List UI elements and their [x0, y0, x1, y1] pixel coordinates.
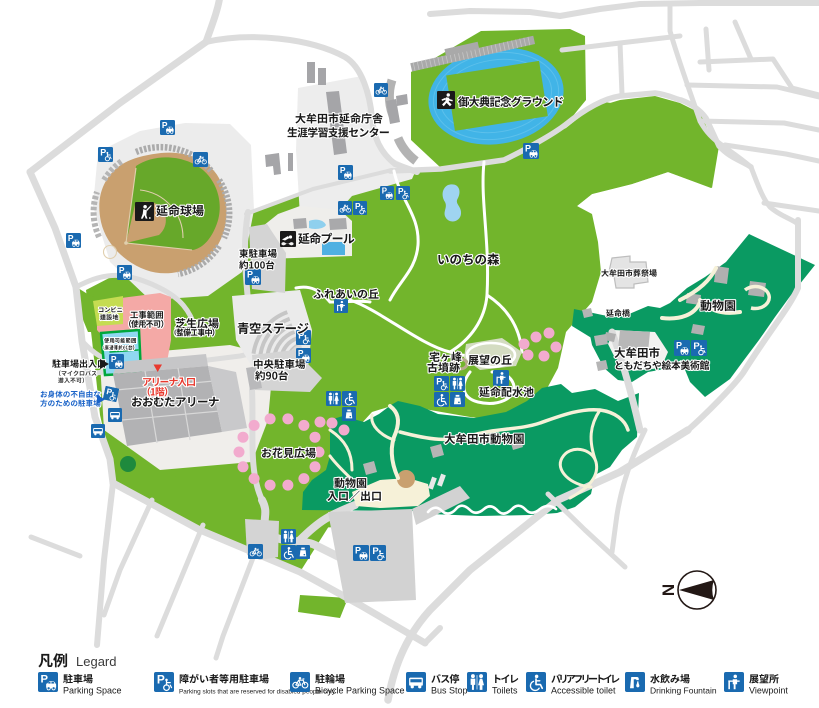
svg-text:Bus Stop: Bus Stop	[431, 686, 468, 696]
svg-text:Legard: Legard	[76, 654, 116, 669]
svg-text:N: N	[659, 584, 678, 596]
svg-text:Parking slots that are reserve: Parking slots that are reserved for disa…	[179, 689, 336, 696]
svg-text:Parking Space: Parking Space	[63, 686, 122, 696]
svg-text:Bicycle Parking Space: Bicycle Parking Space	[315, 686, 405, 696]
svg-text:Viewpoint: Viewpoint	[749, 686, 788, 696]
svg-text:Toilets: Toilets	[492, 686, 518, 696]
svg-text:Accessible toilet: Accessible toilet	[551, 686, 616, 696]
svg-text:Drinking Fountain: Drinking Fountain	[650, 686, 717, 696]
